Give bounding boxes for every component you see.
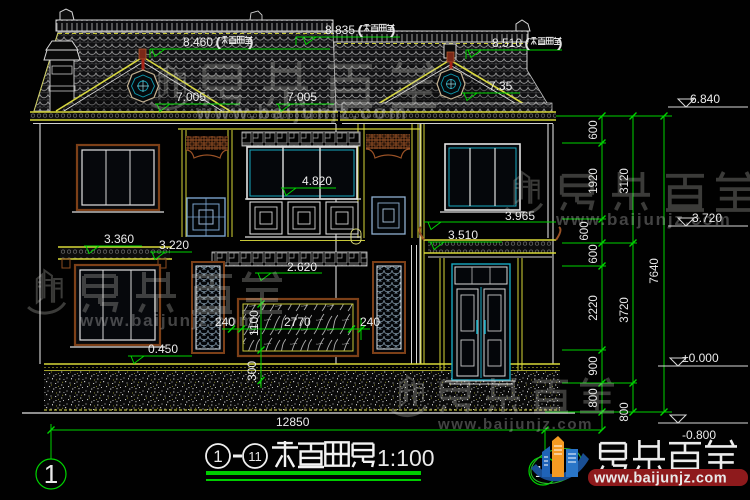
svg-text:(: (: [525, 36, 529, 50]
svg-text:8.835: 8.835: [325, 23, 355, 37]
svg-text:2770: 2770: [284, 315, 311, 329]
svg-text:7.35: 7.35: [489, 79, 513, 93]
svg-text:1: 1: [213, 447, 222, 466]
svg-text:7640: 7640: [649, 258, 661, 284]
svg-text:600: 600: [588, 244, 600, 263]
svg-text:8.510: 8.510: [492, 36, 522, 50]
svg-text:11: 11: [248, 449, 262, 464]
svg-text:2220: 2220: [588, 295, 600, 321]
svg-text:6.840: 6.840: [690, 92, 720, 106]
svg-text:300: 300: [245, 361, 259, 381]
svg-text:3720: 3720: [619, 297, 631, 323]
svg-text:900: 900: [588, 356, 600, 375]
svg-text:(: (: [358, 23, 362, 37]
svg-text:www.baijunjz.com: www.baijunjz.com: [195, 102, 409, 124]
svg-text:www.baijunjz.com: www.baijunjz.com: [437, 416, 593, 433]
svg-text:1: 1: [44, 459, 58, 489]
svg-text:800: 800: [619, 402, 631, 421]
svg-text:600: 600: [588, 120, 600, 139]
svg-text:(: (: [216, 35, 220, 49]
svg-text:8.460: 8.460: [183, 35, 213, 49]
svg-text:4.820: 4.820: [302, 174, 332, 188]
svg-text:12850: 12850: [276, 415, 310, 429]
svg-text:www.baijunjz.com: www.baijunjz.com: [593, 471, 727, 487]
svg-text:2.620: 2.620: [287, 260, 317, 274]
svg-text:0.450: 0.450: [148, 342, 178, 356]
svg-text:3.220: 3.220: [159, 238, 189, 252]
svg-text:3.360: 3.360: [104, 232, 134, 246]
svg-text:240: 240: [360, 315, 380, 329]
svg-text:www.baijunjz.com: www.baijunjz.com: [79, 311, 256, 330]
svg-text:±0.000: ±0.000: [682, 351, 719, 365]
svg-text:1:100: 1:100: [377, 445, 435, 471]
svg-text:www.baijunjz.com: www.baijunjz.com: [555, 210, 732, 229]
svg-text:3.510: 3.510: [448, 228, 478, 242]
